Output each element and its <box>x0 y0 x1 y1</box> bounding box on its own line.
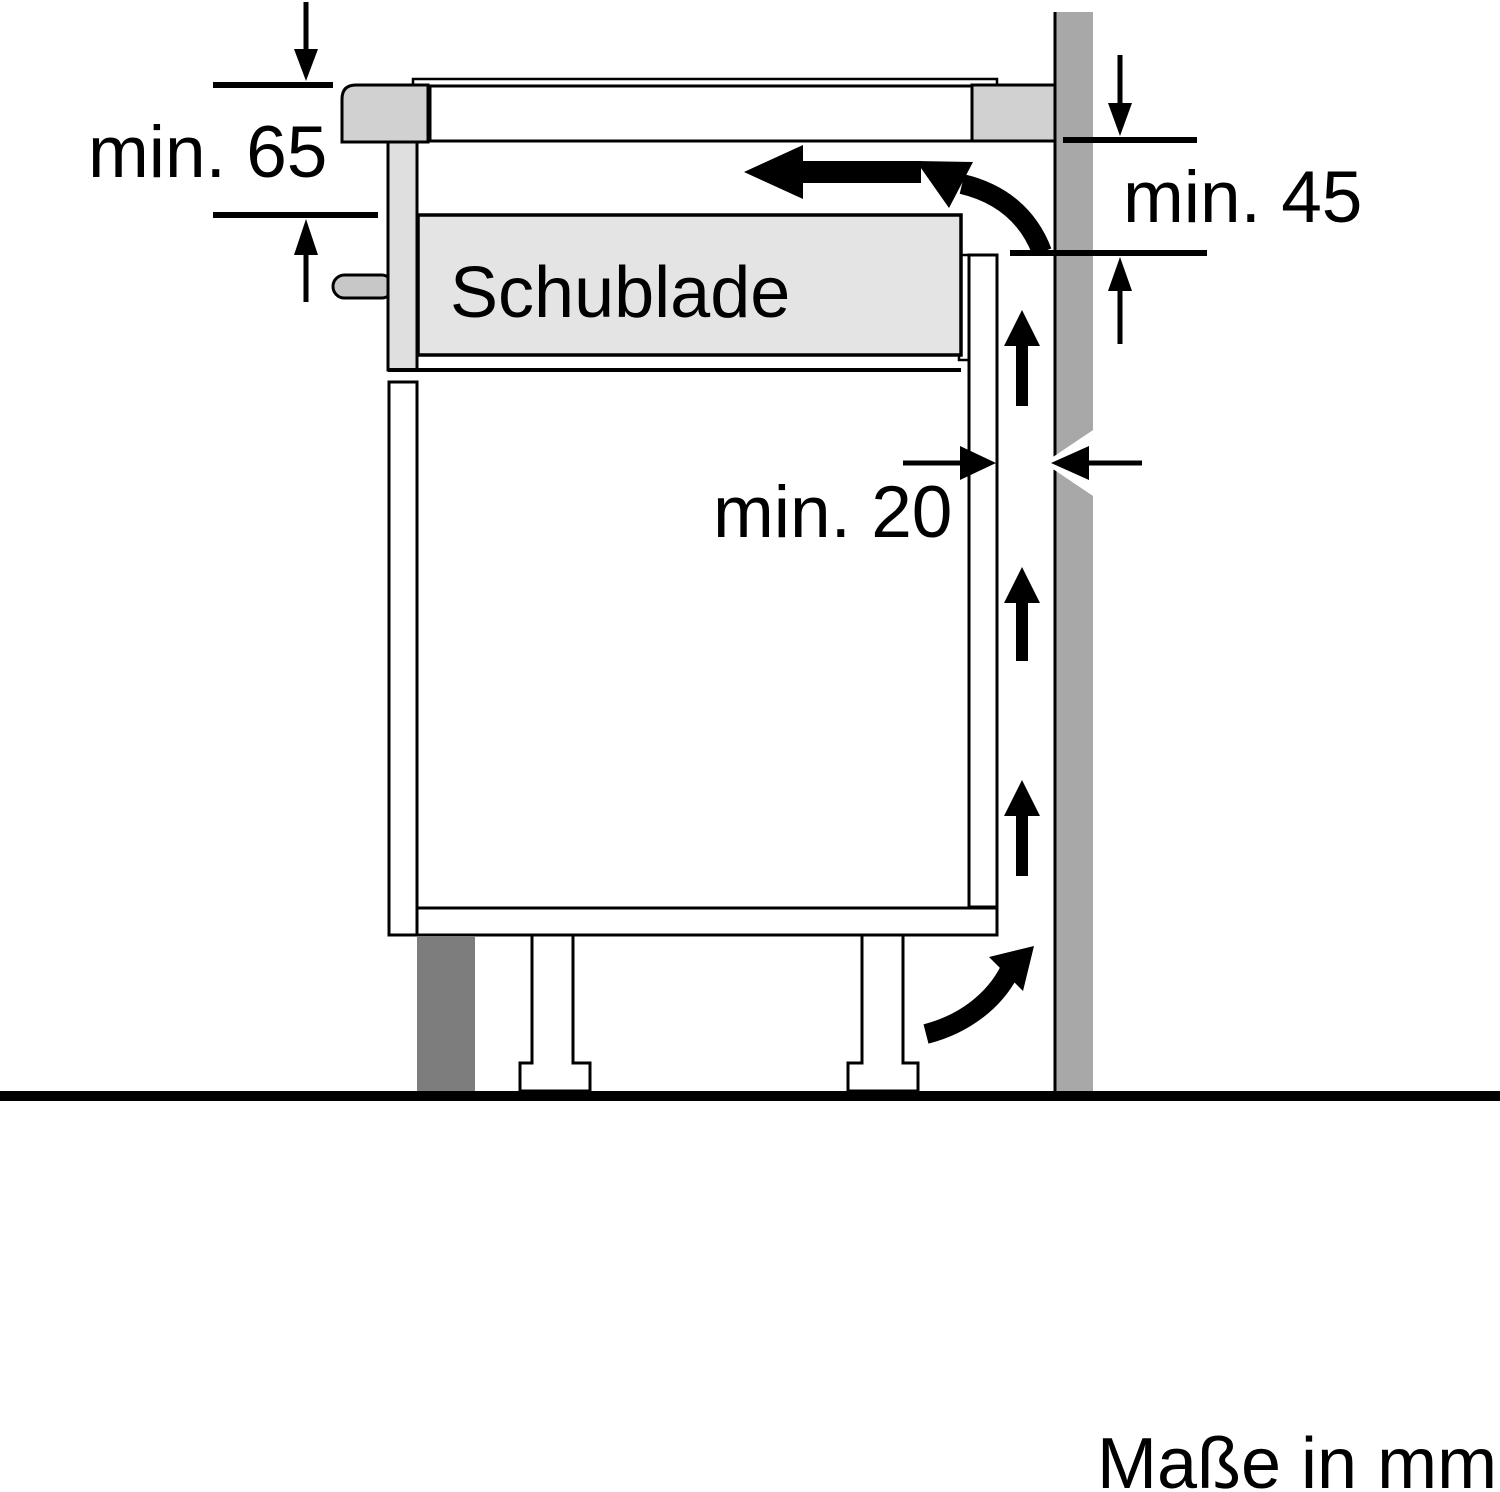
worktop-section <box>430 86 972 141</box>
airflow-up-arrow-head <box>1004 780 1040 816</box>
dim65-down-arrow-head <box>294 49 318 81</box>
dim45-label: min. 45 <box>1123 157 1362 238</box>
hob-front-trim <box>342 85 428 142</box>
hob-housing-front-strip <box>388 142 417 370</box>
airflow-curve-top-shaft <box>962 184 1042 252</box>
wall-surface <box>1055 12 1093 1092</box>
airflow-up-arrow-shaft <box>1016 601 1028 661</box>
dim20-label: min. 20 <box>713 472 952 553</box>
dim45-up-arrow-head <box>1108 257 1132 291</box>
airflow-up-arrow-shaft <box>1016 814 1028 876</box>
units-note: Maße in mm <box>1097 1424 1497 1492</box>
airflow-left-arrow-shaft <box>801 161 921 183</box>
airflow-left-arrow <box>744 145 921 199</box>
hob-installation-diagram: min. 45 Schublade <box>0 0 1500 1492</box>
wall <box>1055 12 1093 1092</box>
cabinet-leg-left <box>520 934 590 1091</box>
drawer-label: Schublade <box>450 253 790 333</box>
airflow-up-arrow-head <box>1004 310 1040 346</box>
base-cabinet: Schublade <box>333 142 997 1091</box>
airflow-curve-bottom-shaft <box>926 970 1010 1034</box>
dimension-min65: min. 65 <box>88 2 378 302</box>
dim45-down-arrow-head <box>1108 103 1132 136</box>
airflow-up-arrow-top <box>1004 310 1040 406</box>
hob-assembly <box>342 79 1055 142</box>
cabinet-back-panel <box>969 255 997 907</box>
installation-diagram-page: min. 45 Schublade <box>0 0 1500 1492</box>
dim65-up-arrow-head <box>294 219 318 255</box>
airflow-up-arrow-middle <box>1004 567 1040 661</box>
hob-rear-support <box>972 85 1055 141</box>
airflow-up-arrow-bottom <box>1004 780 1040 876</box>
plinth-block <box>417 936 475 1091</box>
airflow-up-arrow-shaft <box>1016 344 1028 406</box>
cabinet-leg-right <box>848 934 918 1091</box>
dim65-label: min. 65 <box>88 112 327 193</box>
airflow-up-arrow-head <box>1004 567 1040 603</box>
cabinet-front-panel <box>389 382 417 935</box>
drawer-handle <box>333 275 393 298</box>
airflow-left-arrow-head <box>744 145 803 199</box>
airflow-curve-bottom <box>926 946 1034 1034</box>
cabinet-bottom-panel <box>417 908 997 935</box>
floor-line <box>0 1091 1500 1101</box>
